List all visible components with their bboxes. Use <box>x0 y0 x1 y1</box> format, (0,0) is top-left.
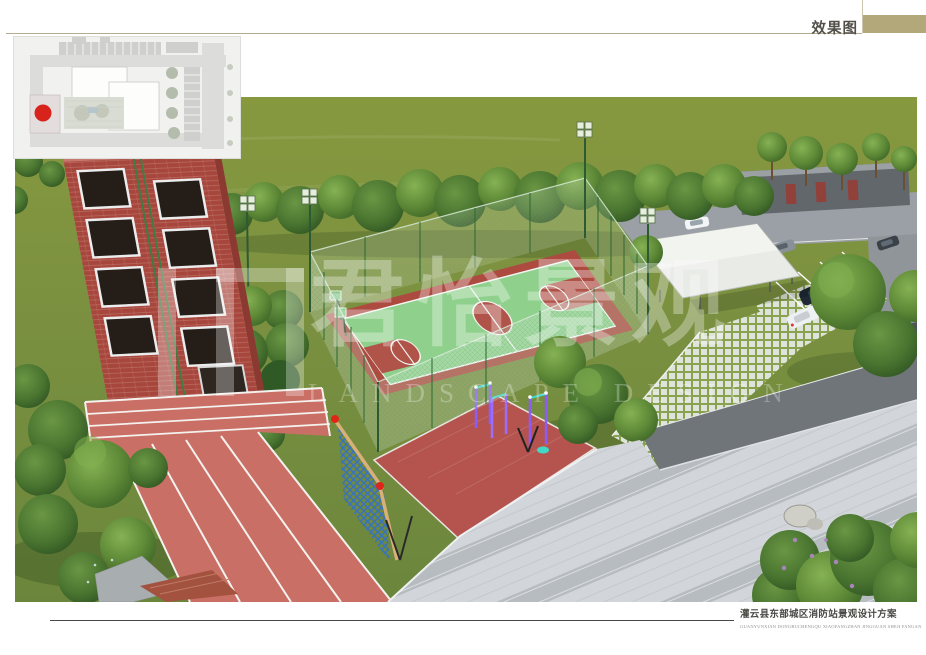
project-title-en: GUANYUNXIAN DONGBUCHENGQU XIAOFANGZHAN J… <box>740 624 921 629</box>
presentation-sheet: 效果图 <box>0 0 926 655</box>
footer-rule <box>50 620 734 621</box>
site-plan-courtyard <box>64 97 124 129</box>
site-plan-location-marker <box>35 105 52 122</box>
site-plan-inset <box>14 37 240 158</box>
project-title-cn: 灌云县东部城区消防站景观设计方案 <box>740 606 897 620</box>
